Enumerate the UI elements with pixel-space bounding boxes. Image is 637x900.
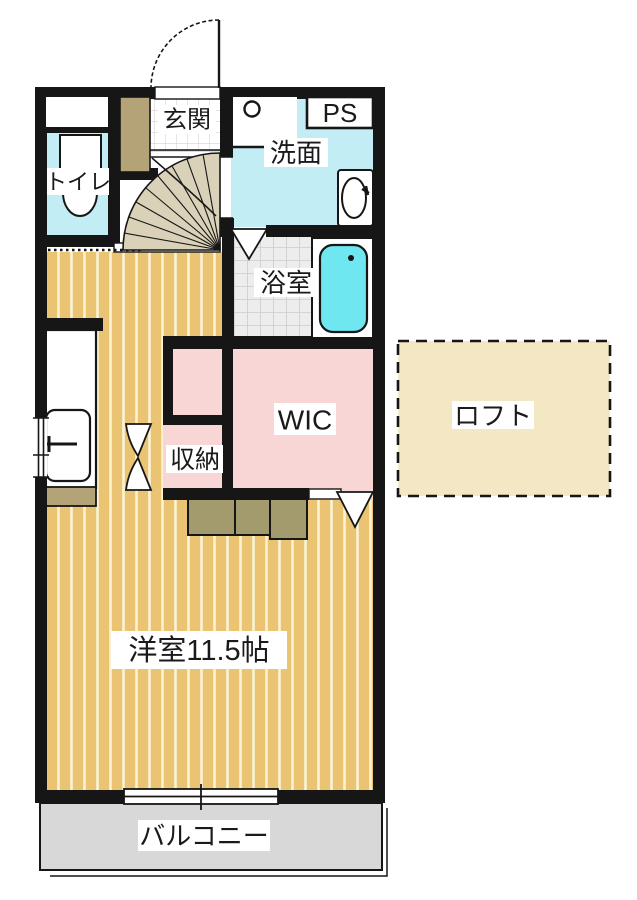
label-main-room: 洋室11.5帖 xyxy=(111,631,287,669)
label-wic: WIC xyxy=(274,403,336,436)
step-1 xyxy=(188,498,235,535)
label-senmen-text: 洗面 xyxy=(270,138,322,168)
entrance-door-arc xyxy=(151,20,219,88)
toilet-tank xyxy=(60,135,101,169)
kitchen-base-cabinet xyxy=(42,487,96,506)
label-bathroom-text: 浴室 xyxy=(260,268,312,298)
step-3 xyxy=(270,498,307,539)
label-loft: ロフト xyxy=(452,401,534,431)
label-main-room-text: 洋室11.5帖 xyxy=(128,634,269,667)
floorplan-page: 玄関 PS 洗面 トイレ 浴室 WIC 収納 ロフト xyxy=(0,0,637,900)
wall-left-lower xyxy=(35,477,47,803)
label-balcony: バルコニー xyxy=(138,820,270,851)
entrance-door xyxy=(151,20,219,88)
label-senmen: 洗面 xyxy=(264,138,328,168)
label-wic-text: WIC xyxy=(278,405,332,436)
wall-bathroom-left xyxy=(222,237,234,336)
label-toilet-text: トイレ xyxy=(45,170,111,195)
wall-right xyxy=(373,87,385,803)
floorplan-drawing: 玄関 PS 洗面 トイレ 浴室 WIC 収納 ロフト xyxy=(0,0,637,900)
loft-steps xyxy=(188,498,307,539)
wall-toilet-bottom xyxy=(35,235,120,247)
label-genkan-text: 玄関 xyxy=(163,107,211,134)
toilet-shelf xyxy=(46,97,108,127)
label-storage: 収納 xyxy=(166,445,223,474)
label-balcony-text: バルコニー xyxy=(139,821,268,851)
label-bathroom: 浴室 xyxy=(254,268,318,298)
entrance-threshold xyxy=(155,87,220,99)
wall-bottom-right xyxy=(275,790,385,803)
tub-basin xyxy=(320,245,367,332)
wall-storage-left-upper xyxy=(163,347,173,424)
kitchen-window-gap xyxy=(35,418,47,477)
tub-drain-icon xyxy=(348,255,354,261)
wall-left-upper xyxy=(35,87,47,418)
wall-kitchen-stub xyxy=(40,318,103,331)
basin-bowl xyxy=(342,178,366,218)
wall-nook-bottom xyxy=(163,415,222,425)
wall-bottom-left xyxy=(35,790,128,803)
wall-storage-wic-divider xyxy=(222,347,233,500)
step-2 xyxy=(235,498,270,535)
wic-door-sill xyxy=(309,489,341,499)
label-genkan: 玄関 xyxy=(158,105,216,134)
kitchen-window xyxy=(33,418,49,477)
label-ps: PS xyxy=(323,98,358,128)
washer-drain-icon xyxy=(245,102,260,117)
label-storage-text: 収納 xyxy=(170,446,220,474)
bathtub xyxy=(312,238,373,338)
wall-genkan-washroom-upper xyxy=(220,97,233,157)
shoe-cabinet xyxy=(120,97,150,172)
label-toilet: トイレ xyxy=(45,168,111,195)
toilet-shelf-edge xyxy=(46,127,108,133)
wash-basin xyxy=(338,170,373,226)
label-loft-text: ロフト xyxy=(454,401,532,431)
label-ps-text: PS xyxy=(323,98,358,128)
wall-wic-bottom xyxy=(163,488,309,500)
